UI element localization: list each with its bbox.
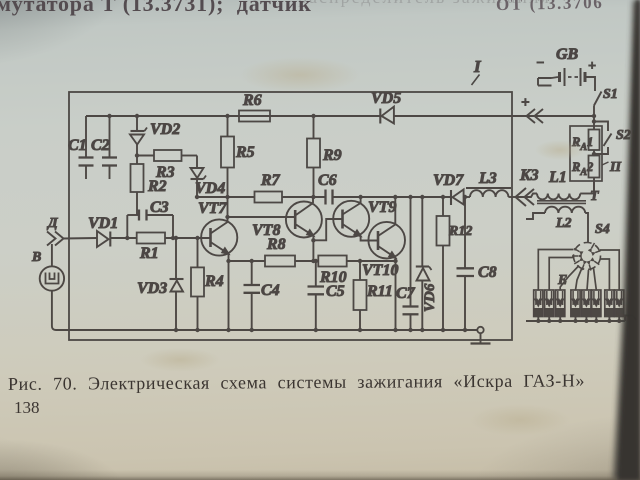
svg-text:VD1: VD1 [88,215,118,232]
svg-text:R8: R8 [266,236,286,253]
svg-text:+: + [588,59,596,74]
svg-text:L1: L1 [548,169,567,186]
svg-text:−: − [536,56,544,71]
svg-text:VT9: VT9 [368,199,396,216]
svg-text:C3: C3 [150,199,169,216]
svg-text:+: + [521,95,530,111]
svg-text:R12: R12 [448,224,472,239]
svg-text:S4: S4 [595,222,610,237]
svg-text:K3: K3 [519,167,539,184]
svg-text:R6: R6 [242,92,262,109]
svg-text:R5: R5 [235,144,255,161]
svg-text:RA2: RA2 [571,160,593,178]
svg-text:GB: GB [556,46,579,63]
svg-text:R1: R1 [139,245,159,262]
svg-text:VT7: VT7 [198,200,227,217]
svg-text:C4: C4 [261,282,280,299]
svg-text:VD7: VD7 [433,172,464,189]
svg-text:L3: L3 [478,170,497,187]
svg-text:B: B [31,250,41,265]
svg-text:VD2: VD2 [150,121,180,138]
svg-text:VD3: VD3 [137,280,167,297]
svg-text:R2: R2 [147,178,167,195]
svg-text:C2: C2 [91,137,110,154]
svg-text:R7: R7 [260,172,281,189]
svg-text:Д: Д [46,216,58,231]
svg-text:VD5: VD5 [371,90,401,107]
svg-text:C7: C7 [396,285,416,302]
svg-text:C8: C8 [478,264,497,281]
svg-text:C5: C5 [326,283,345,300]
svg-text:L2: L2 [555,216,572,231]
svg-text:T: T [590,189,600,204]
svg-text:C1: C1 [68,137,87,154]
svg-text:R9: R9 [322,147,342,164]
svg-text:C6: C6 [318,172,337,189]
svg-text:VD4: VD4 [195,180,225,197]
svg-text:I: I [473,57,482,76]
svg-text:R11: R11 [366,283,393,300]
svg-text:VT10: VT10 [362,262,398,279]
svg-text:S1: S1 [603,87,618,102]
svg-text:II: II [609,160,621,175]
svg-text:VD6: VD6 [422,283,438,312]
svg-text:R4: R4 [204,273,224,290]
